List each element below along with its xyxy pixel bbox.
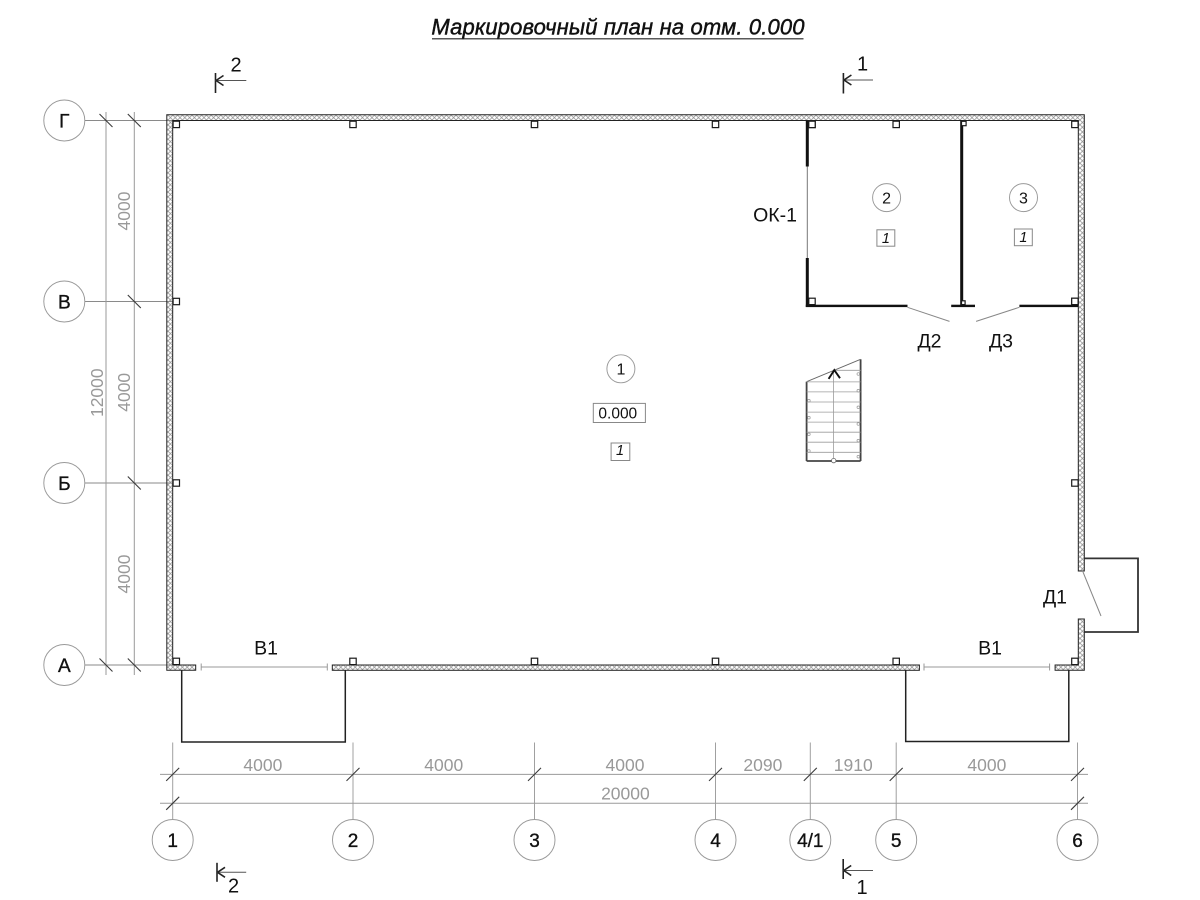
svg-text:1910: 1910 <box>834 755 873 775</box>
svg-text:Б: Б <box>58 474 70 495</box>
svg-text:В: В <box>58 292 71 313</box>
svg-text:А: А <box>58 656 71 677</box>
svg-text:2: 2 <box>228 876 239 898</box>
svg-text:1: 1 <box>882 231 890 247</box>
svg-text:1: 1 <box>856 877 867 899</box>
svg-text:4000: 4000 <box>424 755 463 775</box>
svg-text:2090: 2090 <box>743 755 782 775</box>
svg-text:ОК-1: ОК-1 <box>753 205 797 227</box>
svg-text:4000: 4000 <box>967 755 1006 775</box>
svg-text:5: 5 <box>891 831 902 852</box>
svg-text:20000: 20000 <box>601 783 650 803</box>
svg-text:1: 1 <box>616 443 624 459</box>
svg-text:2: 2 <box>882 190 891 207</box>
svg-text:Д2: Д2 <box>917 330 941 352</box>
svg-text:В1: В1 <box>254 638 278 660</box>
svg-text:4000: 4000 <box>114 373 134 412</box>
svg-text:4: 4 <box>710 831 721 852</box>
svg-text:Г: Г <box>59 111 69 132</box>
svg-text:Маркировочный план на отм. 0.0: Маркировочный план на отм. 0.000 <box>431 15 805 40</box>
svg-text:2: 2 <box>230 55 241 77</box>
svg-text:1: 1 <box>616 362 625 379</box>
svg-text:4000: 4000 <box>243 755 282 775</box>
svg-text:3: 3 <box>1019 190 1028 207</box>
svg-text:1: 1 <box>1019 230 1027 246</box>
svg-text:Д3: Д3 <box>989 330 1013 352</box>
svg-text:2: 2 <box>348 831 359 852</box>
svg-text:1: 1 <box>857 54 868 76</box>
svg-text:12000: 12000 <box>87 368 107 417</box>
svg-text:0.000: 0.000 <box>598 405 637 422</box>
svg-text:4/1: 4/1 <box>797 831 823 852</box>
svg-text:4000: 4000 <box>606 755 645 775</box>
svg-text:3: 3 <box>529 831 540 852</box>
svg-text:1: 1 <box>167 831 178 852</box>
svg-text:4000: 4000 <box>114 554 134 593</box>
svg-text:Д1: Д1 <box>1043 587 1067 609</box>
svg-text:В1: В1 <box>978 638 1002 660</box>
svg-text:6: 6 <box>1072 831 1083 852</box>
svg-text:4000: 4000 <box>114 191 134 230</box>
